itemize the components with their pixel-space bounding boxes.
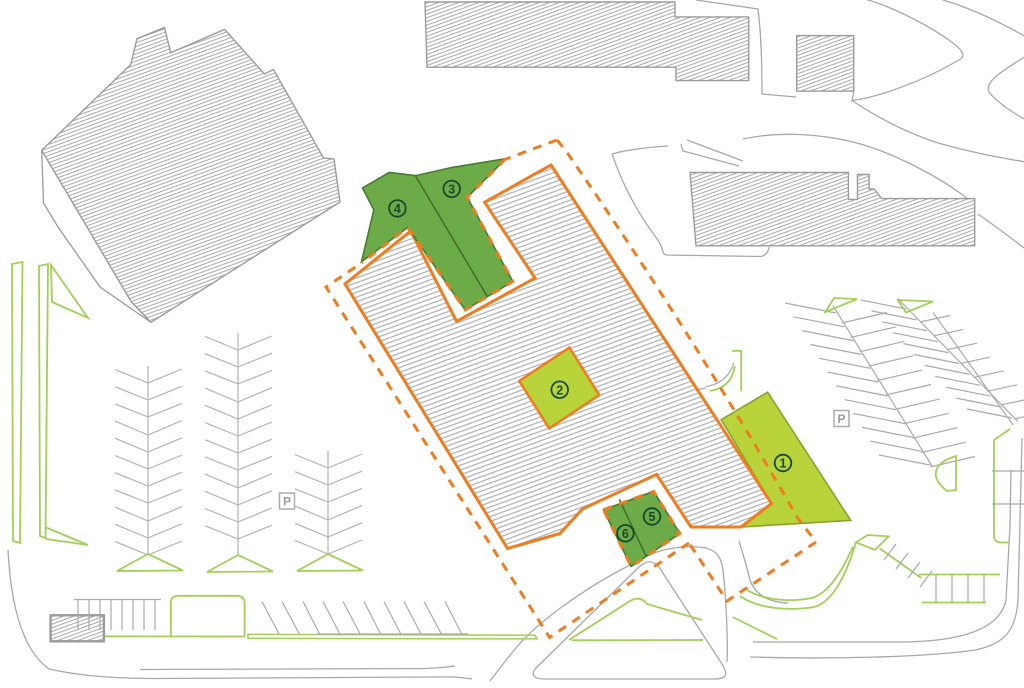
svg-text:2: 2 bbox=[556, 383, 563, 397]
svg-text:6: 6 bbox=[622, 527, 629, 541]
svg-text:4: 4 bbox=[394, 202, 401, 216]
svg-text:1: 1 bbox=[780, 457, 787, 471]
svg-text:P: P bbox=[837, 412, 845, 426]
svg-text:P: P bbox=[283, 495, 291, 509]
svg-text:3: 3 bbox=[448, 183, 455, 197]
svg-text:5: 5 bbox=[649, 510, 656, 524]
